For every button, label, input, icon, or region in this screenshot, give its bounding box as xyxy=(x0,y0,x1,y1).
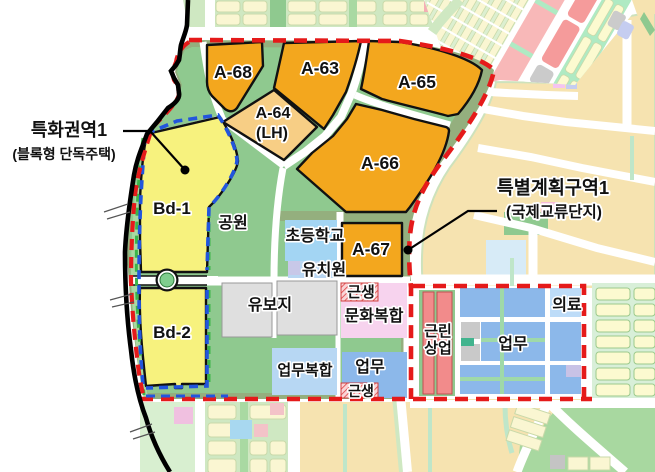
svg-text:업무복합: 업무복합 xyxy=(277,362,332,379)
svg-text:(블록형 단독주택): (블록형 단독주택) xyxy=(12,146,115,162)
svg-text:특화권역1: 특화권역1 xyxy=(31,120,107,140)
svg-text:특별계획구역1: 특별계획구역1 xyxy=(497,177,609,198)
svg-text:(LH): (LH) xyxy=(256,125,288,142)
svg-text:근생: 근생 xyxy=(348,383,374,399)
svg-text:공원: 공원 xyxy=(218,214,247,232)
svg-text:A-67: A-67 xyxy=(352,239,390,259)
svg-text:근린: 근린 xyxy=(424,322,452,340)
svg-text:의료: 의료 xyxy=(552,296,582,314)
svg-text:유보지: 유보지 xyxy=(248,296,292,314)
svg-text:A-66: A-66 xyxy=(361,153,399,173)
svg-text:Bd-1: Bd-1 xyxy=(153,199,191,218)
svg-text:유치원: 유치원 xyxy=(302,261,346,279)
svg-text:업무: 업무 xyxy=(498,335,528,353)
svg-text:근생: 근생 xyxy=(347,284,375,301)
svg-text:A-64: A-64 xyxy=(256,105,291,122)
svg-text:업무: 업무 xyxy=(355,358,385,376)
svg-text:상업: 상업 xyxy=(424,340,452,357)
svg-text:초등학교: 초등학교 xyxy=(286,227,345,245)
svg-text:Bd-2: Bd-2 xyxy=(153,323,191,342)
svg-text:A-63: A-63 xyxy=(301,58,339,78)
svg-text:A-68: A-68 xyxy=(214,62,252,82)
svg-text:문화복합: 문화복합 xyxy=(345,306,404,325)
svg-text:(국제교류단지): (국제교류단지) xyxy=(506,203,602,221)
svg-text:A-65: A-65 xyxy=(398,72,436,92)
